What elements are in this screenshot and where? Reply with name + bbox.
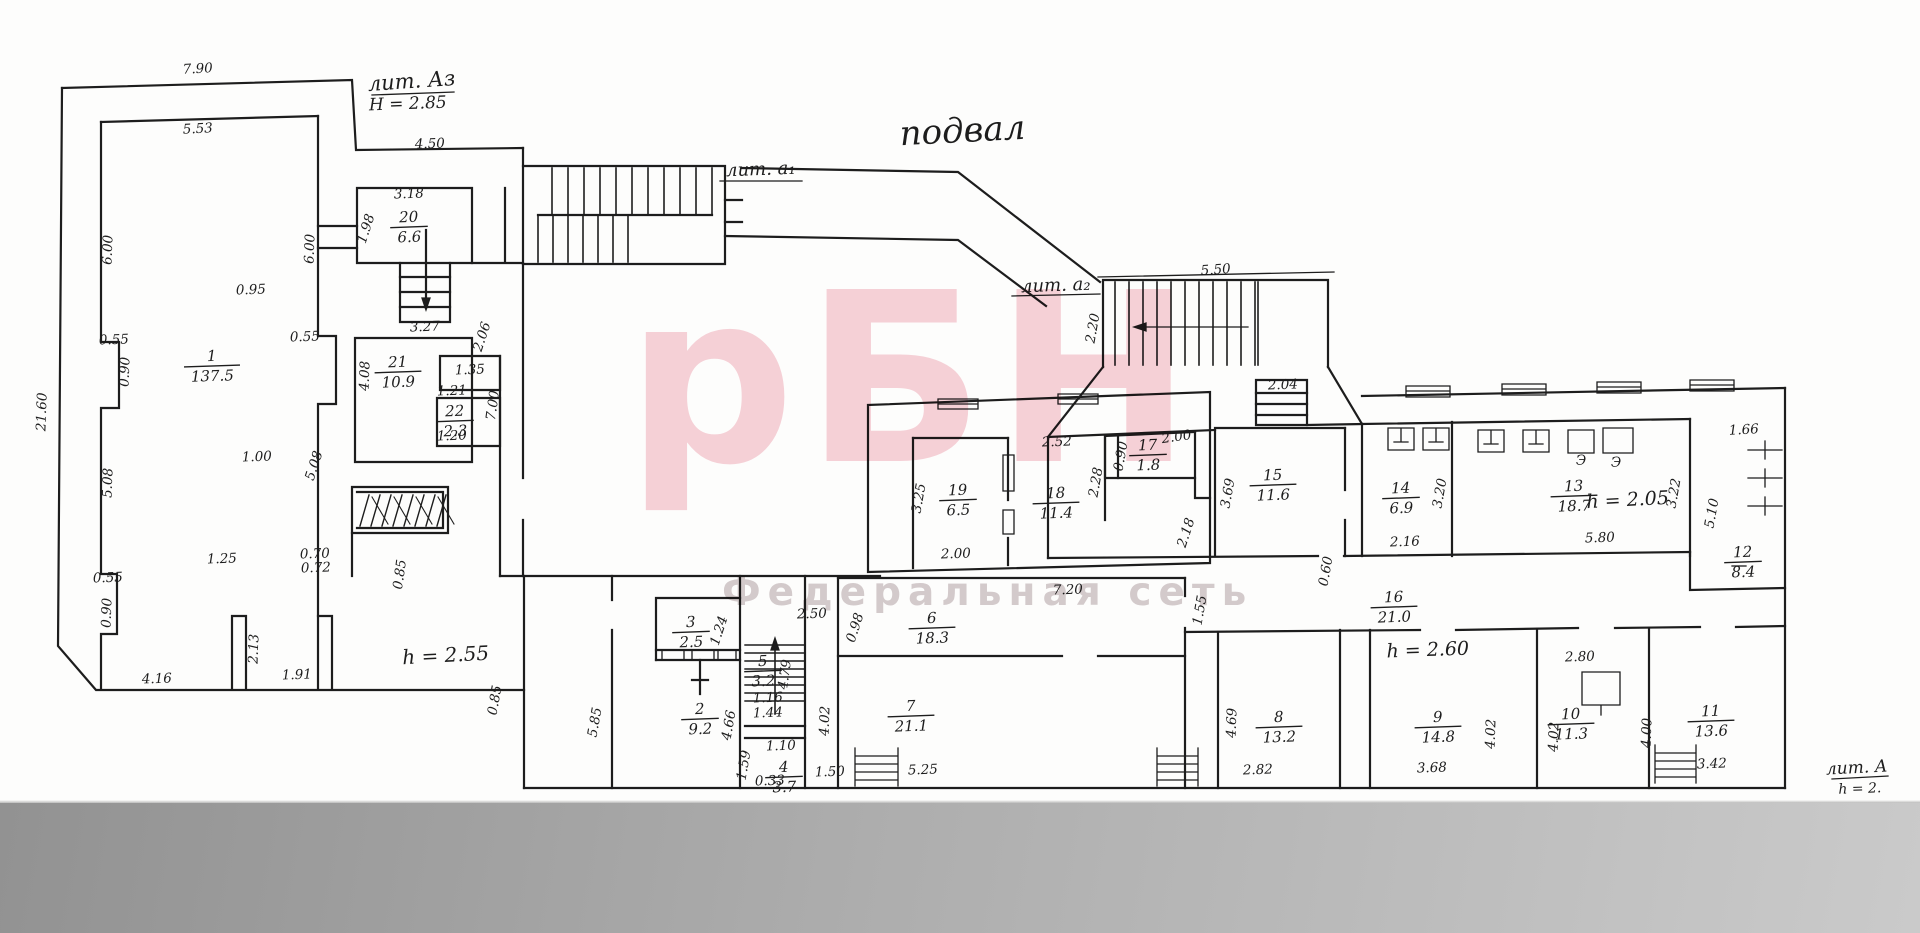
walls-layer	[58, 80, 1785, 788]
dimension-label: 3.69	[1218, 477, 1239, 510]
dimension-label: 2.16	[1389, 533, 1421, 550]
dimension-label: 2.80	[1564, 648, 1596, 665]
room-area: 11.4	[1039, 503, 1073, 522]
room-label: 1811.4	[1032, 483, 1080, 523]
dimension-label: 0.60	[1316, 555, 1337, 588]
room-number: 20	[398, 208, 419, 227]
dimension-label: 3.18	[394, 185, 425, 202]
dimension-label: 3.68	[1417, 759, 1448, 776]
dimension-label: 6.00	[301, 233, 318, 264]
room-label: 1621.0	[1370, 587, 1418, 627]
dimension-label: 2.20	[1082, 312, 1103, 346]
room-label: 32.5	[672, 612, 711, 651]
dimension-label: 2.82	[1242, 761, 1274, 778]
room-number: 4	[778, 758, 789, 776]
dimension-label: 5.25	[908, 761, 939, 778]
height-note: h = 2.	[1838, 780, 1882, 797]
height-note: h = 2.60	[1386, 638, 1469, 663]
dimension-label: 3.27	[410, 318, 441, 335]
room-number: 6	[927, 609, 938, 627]
room-area: 8.4	[1731, 563, 1755, 582]
room-number: 19	[948, 481, 968, 500]
dimension-label: 1.21	[437, 382, 468, 399]
dimension-label: 1.10	[766, 737, 797, 754]
scan-artifact-band	[0, 803, 1920, 933]
height-note: h = 2.55	[402, 641, 490, 670]
room-area: 2.5	[678, 633, 703, 652]
room-number: 16	[1384, 588, 1404, 607]
dimension-label: 2.00	[1159, 427, 1192, 447]
room-label: 128.4	[1724, 542, 1763, 581]
room-number: 8	[1274, 708, 1284, 726]
room-number: 9	[1433, 708, 1444, 726]
room-label: 813.2	[1255, 707, 1303, 747]
room-number: 21	[387, 353, 408, 372]
dimension-label: 1.66	[1728, 421, 1759, 439]
room-number: 1	[207, 347, 217, 365]
liter-A-label: лит. А	[1825, 756, 1888, 779]
dimension-label: 0.55	[290, 328, 321, 345]
dimension-label: 1.00	[242, 448, 273, 465]
room-label: 196.5	[939, 480, 978, 519]
room-label: 721.1	[887, 696, 935, 736]
room-area: 2.3	[442, 422, 467, 441]
room-number: 3	[686, 613, 696, 631]
room-number: 2	[694, 700, 705, 718]
dimension-label: 5.50	[1200, 261, 1232, 279]
room-label: 146.9	[1382, 478, 1421, 517]
room-area: 137.5	[191, 366, 235, 385]
room-number: 17	[1138, 436, 1158, 455]
dimension-label: Э	[1611, 455, 1621, 471]
room-number: 13	[1564, 477, 1584, 496]
dimension-label: 5.85	[585, 706, 606, 738]
height-A3-label: H = 2.85	[368, 93, 447, 116]
dimension-label: 2.13	[245, 634, 262, 666]
dimension-label: 5.53	[182, 120, 213, 138]
dimension-label: 2.52	[1041, 433, 1073, 450]
room-number: 18	[1046, 484, 1066, 503]
room-area: 11.6	[1256, 485, 1290, 504]
dimension-label: 6.00	[99, 234, 116, 265]
dimension-label: 2.00	[940, 545, 972, 562]
dimension-label: 21.60	[33, 392, 50, 433]
dimension-label: 3.20	[1430, 477, 1451, 510]
room-label: 43.7	[765, 757, 804, 796]
dimension-label: 5.08	[302, 449, 327, 483]
room-label: 1137.5	[183, 346, 240, 386]
dimension-label: 5.80	[1585, 529, 1616, 546]
labels-layer: 7.905.534.503.181.986.006.000.953.270.55…	[33, 60, 1888, 798]
room-area: 10.9	[381, 372, 415, 391]
room-number: 5	[758, 652, 768, 670]
dimension-label: 0.55	[93, 569, 124, 586]
room-label: 618.3	[908, 608, 956, 648]
liter-a1-label: лит. а₁	[726, 158, 796, 181]
room-label: 914.8	[1414, 707, 1462, 747]
room-area: 21.1	[893, 716, 928, 735]
dimension-label: 3.42	[1697, 755, 1728, 772]
room-area: 3.7	[772, 778, 797, 797]
dimension-label: 5.10	[1702, 497, 1723, 530]
dimension-label: 0.55	[99, 331, 130, 348]
dimension-label: 4.66	[718, 709, 739, 743]
scanned-floor-plan-page: 7.905.534.503.181.986.006.000.953.270.55…	[0, 0, 1920, 933]
room-area: 9.2	[688, 720, 712, 739]
liter-a2-label: лит. а₂	[1021, 274, 1091, 297]
dimension-label: 1.59	[734, 749, 755, 782]
dimension-label: 0.98	[843, 611, 868, 645]
room-area: 21.0	[1376, 607, 1411, 626]
dimension-label: 7.90	[182, 60, 213, 78]
room-label: 1011.3	[1547, 704, 1595, 744]
dimension-label: 4.69	[1223, 707, 1240, 739]
dimension-label: 1.25	[207, 550, 238, 567]
dimension-label: 7.20	[1053, 581, 1084, 598]
room-label: 1511.6	[1249, 465, 1297, 505]
dimension-label: 1.55	[1190, 594, 1211, 626]
dimension-label: 4.02	[1482, 719, 1499, 751]
room-area: 6.5	[946, 501, 970, 520]
dimension-label: 1.50	[815, 763, 846, 780]
plan-title: подвал	[899, 108, 1027, 155]
dimension-label: 4.16	[141, 670, 173, 687]
room-number: 14	[1391, 479, 1411, 498]
dimension-label: 2.06	[470, 320, 495, 355]
dimension-label: 1.24	[707, 614, 732, 648]
dimension-label: 1.35	[455, 361, 486, 378]
room-area: 3.2	[751, 672, 775, 691]
room-area: 13.2	[1262, 727, 1296, 746]
dimension-label: 4.79	[775, 658, 795, 691]
dimension-label: 0.90	[98, 597, 115, 628]
room-area: 18.3	[915, 628, 949, 647]
dimension-label: 0.85	[390, 558, 410, 590]
room-number: 22	[444, 402, 465, 421]
dimension-label: 2.04	[1267, 376, 1299, 393]
fixtures-layer	[360, 92, 1888, 786]
room-number: 15	[1263, 466, 1283, 485]
dimension-label: 2.18	[1174, 516, 1199, 551]
room-area: 1.8	[1136, 456, 1160, 475]
floor-plan-drawing: 7.905.534.503.181.986.006.000.953.270.55…	[0, 0, 1920, 933]
room-label: 29.2	[681, 699, 720, 738]
dimension-label: 4.00	[1638, 717, 1655, 749]
dimension-label: 0.90	[116, 356, 133, 387]
room-area: 14.8	[1421, 727, 1455, 746]
room-label: 1113.6	[1687, 701, 1735, 741]
dimension-label: 2.50	[796, 605, 828, 622]
room-area: 11.3	[1554, 724, 1588, 743]
dimension-label: 4.02	[816, 706, 833, 738]
room-number: 10	[1561, 705, 1581, 724]
room-number: 11	[1701, 702, 1721, 721]
dimension-label: Э	[1576, 453, 1586, 469]
dimension-label: 4.50	[414, 135, 446, 152]
room-number: 12	[1733, 543, 1753, 562]
room-number: 7	[906, 697, 917, 715]
room-label: 2110.9	[374, 352, 422, 392]
dimension-label: 2.28	[1085, 466, 1106, 500]
room-area: 6.9	[1389, 499, 1414, 518]
dimension-label: 5.08	[99, 467, 116, 498]
dimension-label: 1.91	[282, 666, 313, 683]
dimension-label: 1.44	[753, 704, 784, 721]
room-label: 206.6	[390, 207, 429, 246]
room-area: 13.6	[1694, 721, 1728, 740]
liter-A3-label: лит. Аз	[367, 66, 456, 96]
dimension-label: 4.08	[356, 360, 373, 392]
room-area: 6.6	[397, 228, 422, 247]
dimension-label: 0.95	[236, 281, 267, 298]
dimension-label: 0.72	[301, 559, 332, 576]
height-note: h = 2.05	[1586, 487, 1670, 513]
dimension-label: 3.25	[909, 482, 930, 514]
dimension-label: 0.90	[1111, 440, 1132, 473]
